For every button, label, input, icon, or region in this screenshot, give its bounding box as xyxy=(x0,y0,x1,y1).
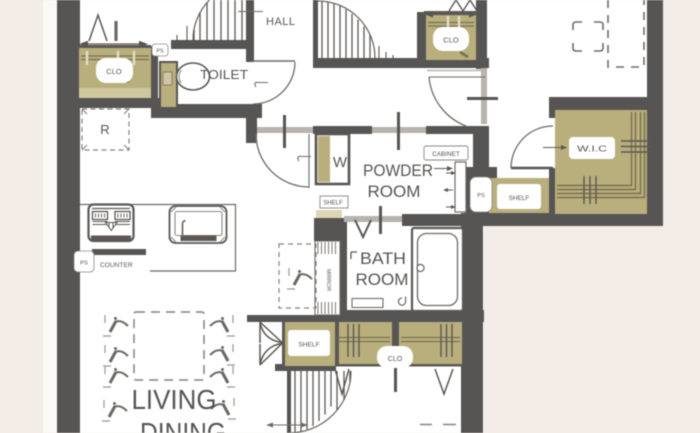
svg-text:COUNTER: COUNTER xyxy=(100,262,133,269)
svg-text:CLO: CLO xyxy=(443,36,459,45)
svg-text:W.I.C: W.I.C xyxy=(577,144,607,154)
svg-text:ROOM: ROOM xyxy=(368,182,421,201)
svg-text:PS: PS xyxy=(156,49,164,55)
svg-text:R: R xyxy=(100,122,109,137)
svg-text:PS: PS xyxy=(80,261,88,267)
svg-text:SHELF: SHELF xyxy=(509,195,530,202)
svg-text:PS: PS xyxy=(477,193,485,199)
svg-text:SHELF: SHELF xyxy=(298,342,319,349)
svg-text:HALL: HALL xyxy=(266,16,296,28)
svg-text:ROOM: ROOM xyxy=(356,270,409,289)
svg-text:SHELF: SHELF xyxy=(323,201,343,207)
svg-text:TOILET: TOILET xyxy=(200,67,248,82)
svg-text:LIVING: LIVING xyxy=(132,384,217,415)
svg-text:CLO: CLO xyxy=(106,67,122,76)
svg-text:POWDER: POWDER xyxy=(363,161,433,180)
svg-text:MIRROR: MIRROR xyxy=(325,269,331,291)
svg-text:CLO: CLO xyxy=(388,356,403,363)
svg-text:W: W xyxy=(333,154,348,171)
svg-text:DINING: DINING xyxy=(140,417,226,433)
svg-text:CABINET: CABINET xyxy=(432,151,460,158)
svg-text:BATH: BATH xyxy=(360,249,406,268)
